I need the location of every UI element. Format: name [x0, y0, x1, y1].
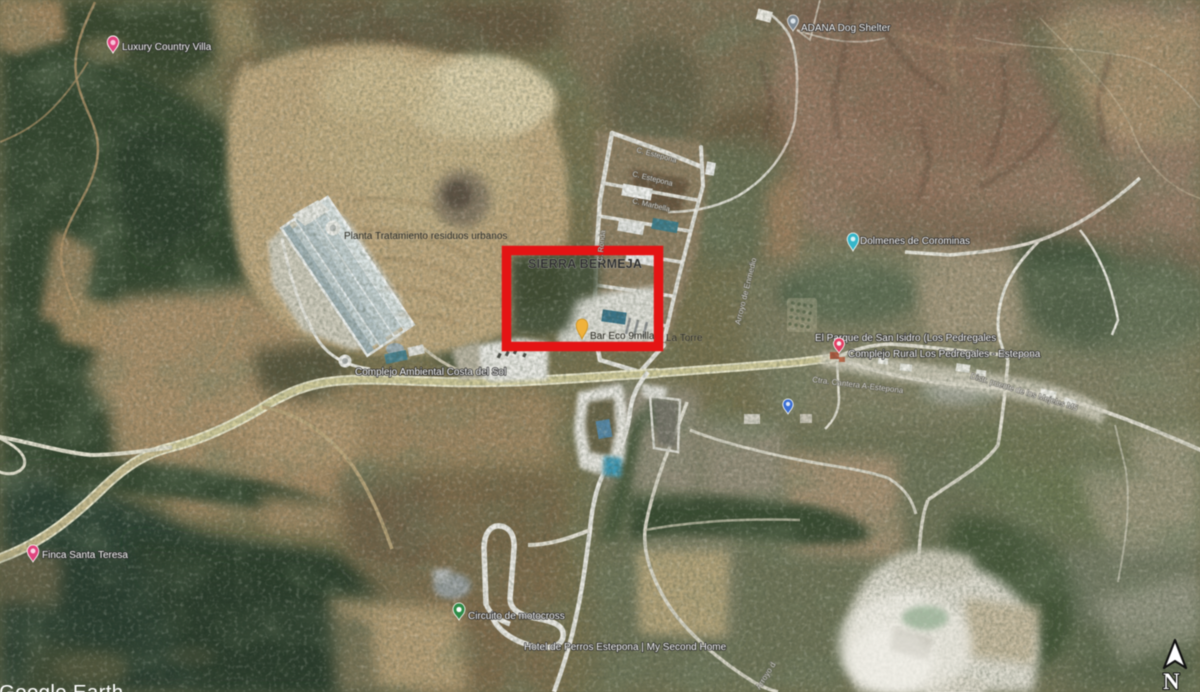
- svg-text:Google Earth: Google Earth: [0, 681, 123, 692]
- svg-text:SIERRA BERMEJA: SIERRA BERMEJA: [528, 257, 642, 271]
- svg-text:Luxury Country Villa: Luxury Country Villa: [122, 42, 212, 53]
- svg-text:Circuito de motocross: Circuito de motocross: [468, 611, 565, 622]
- svg-text:Finca Santa Teresa: Finca Santa Teresa: [42, 550, 128, 561]
- svg-text:Planta Tratamiento residuos ur: Planta Tratamiento residuos urbanos: [344, 231, 507, 242]
- svg-text:N: N: [1163, 669, 1180, 692]
- svg-text:Bar Eco 9milla: Bar Eco 9milla: [590, 331, 655, 342]
- svg-text:La Torre: La Torre: [666, 333, 703, 344]
- svg-text:Complejo Ambiental Costa del S: Complejo Ambiental Costa del Sol: [355, 367, 506, 378]
- svg-text:Dolmenes de Corominas: Dolmenes de Corominas: [860, 236, 970, 247]
- svg-text:Complejo Rural Los Pedregales: Complejo Rural Los Pedregales - Estepona: [848, 349, 1041, 360]
- svg-text:Hotel de Perros Estepona | My: Hotel de Perros Estepona | My Second Hom…: [524, 642, 727, 653]
- svg-text:ADANA Dog Shelter: ADANA Dog Shelter: [801, 23, 891, 34]
